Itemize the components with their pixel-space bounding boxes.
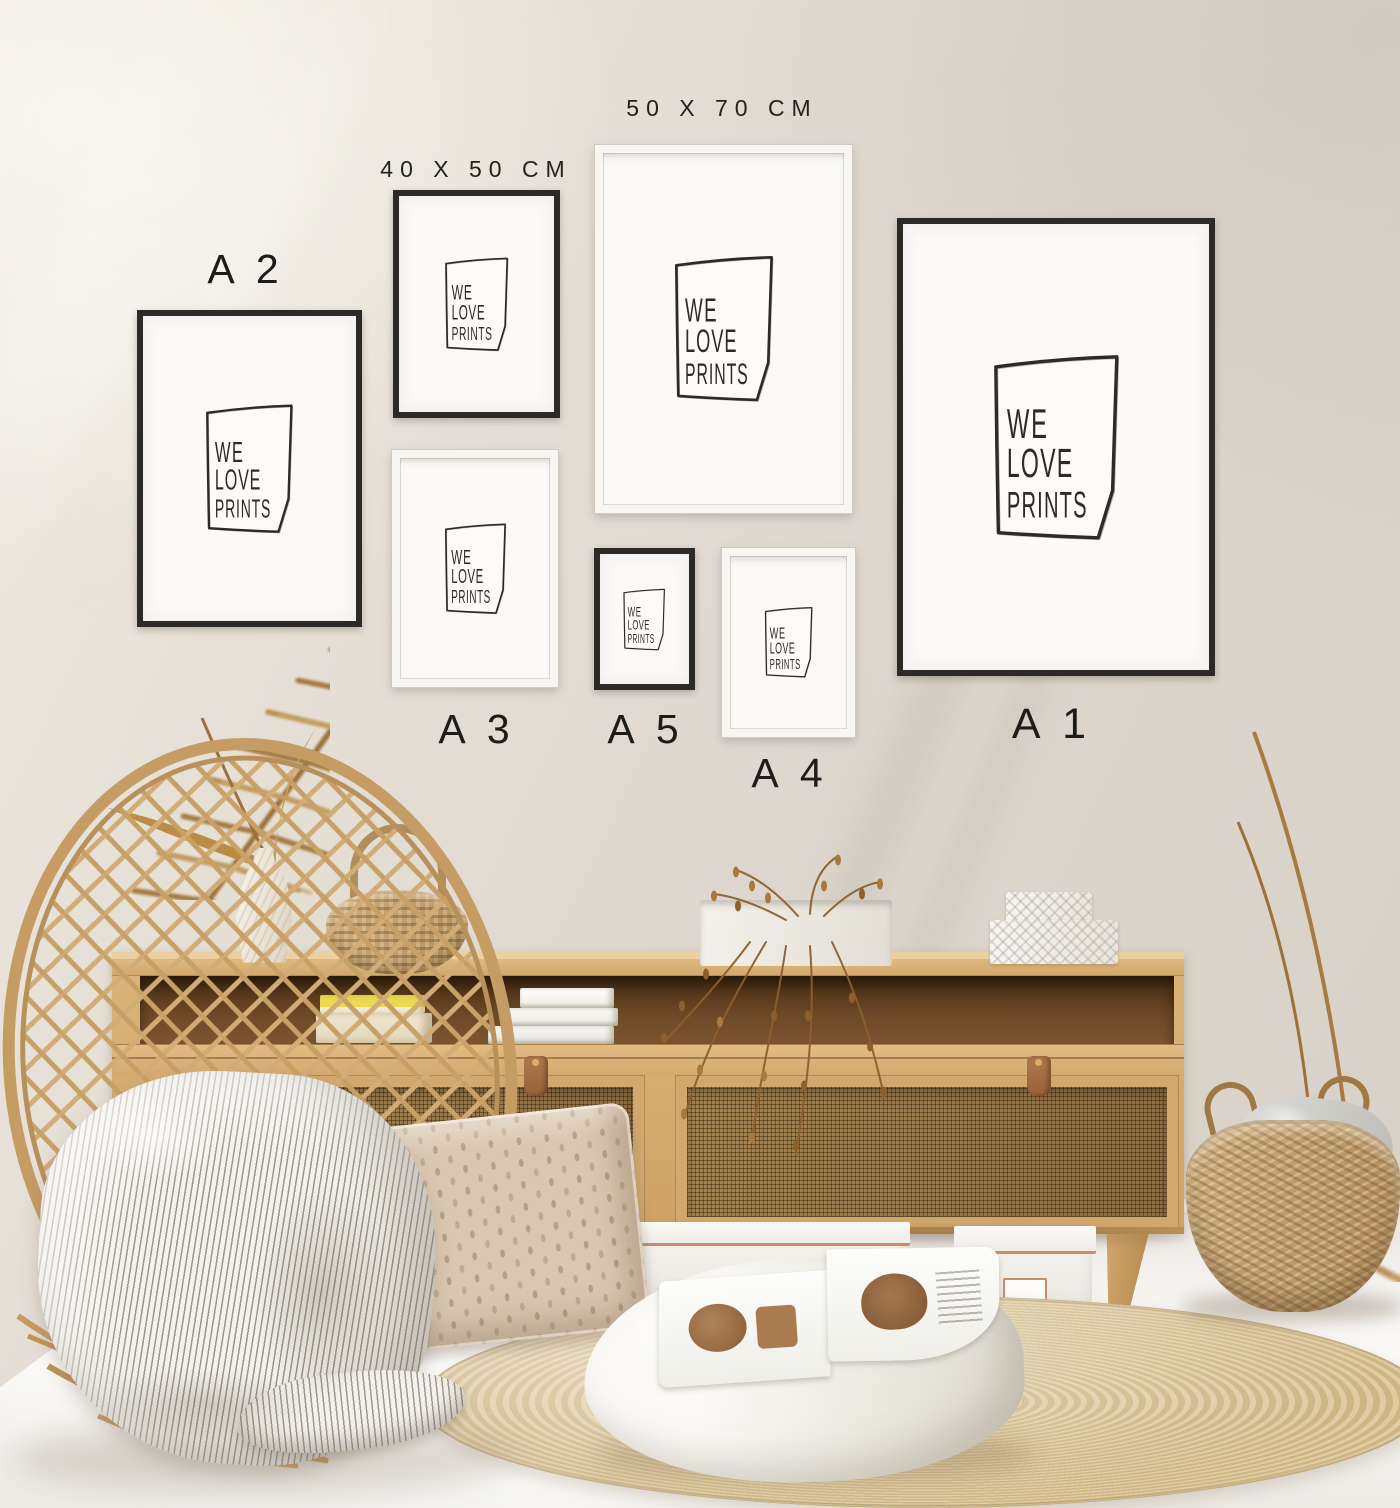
- size-label-50x70: 50 X 70 CM: [626, 95, 817, 122]
- leather-pull-right: [1027, 1056, 1051, 1096]
- size-label-a5: A 5: [607, 706, 684, 753]
- we-love-prints-logo: [199, 401, 299, 536]
- size-label-a2: A 2: [207, 246, 284, 293]
- we-love-prints-logo: [761, 605, 816, 679]
- size-label-a4: A 4: [751, 750, 828, 797]
- we-love-prints-logo: [667, 252, 780, 405]
- frame-40x50cm: [393, 190, 560, 418]
- frame-a3: [392, 450, 558, 687]
- frame-a5: [594, 548, 695, 690]
- we-love-prints-logo: [440, 255, 513, 354]
- we-love-prints-logo: [620, 587, 668, 652]
- magazine-photo: [755, 1304, 798, 1349]
- we-love-prints-logo: [440, 521, 511, 616]
- patterned-storage-box-small: [1006, 892, 1092, 922]
- size-label-40x50: 40 X 50 CM: [380, 156, 571, 183]
- patterned-storage-box-large: [990, 920, 1118, 964]
- open-magazine: [647, 1232, 1012, 1398]
- magazine-text-lines: [935, 1269, 983, 1328]
- dried-vine-plant: [648, 846, 958, 1176]
- frame-a4: [722, 548, 855, 737]
- room-scene: WE LOVE PRINTS: [0, 0, 1400, 1508]
- frame-50x70cm: [595, 145, 852, 513]
